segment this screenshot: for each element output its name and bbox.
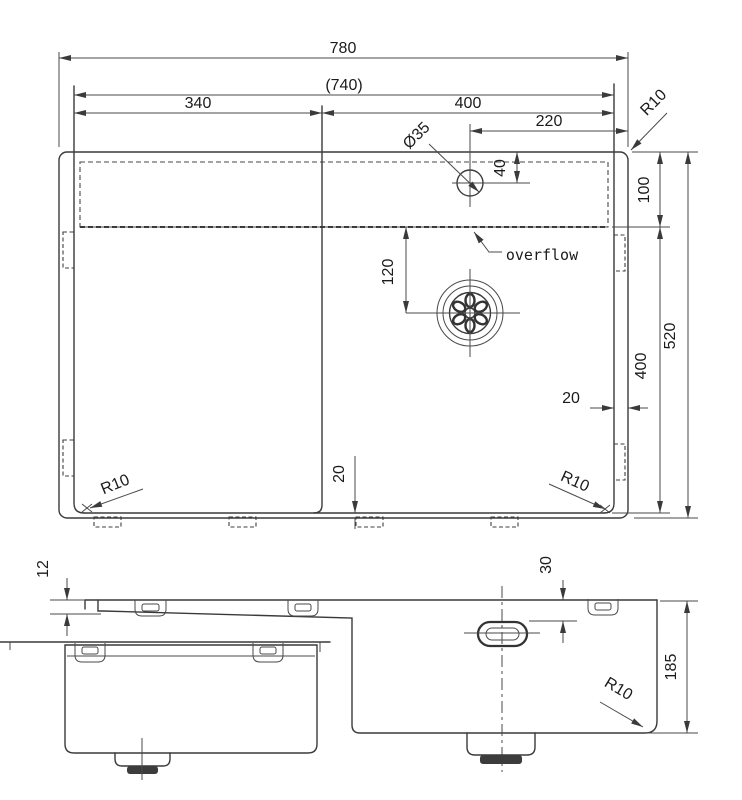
dim-tap-diameter: Ø35 (400, 119, 433, 152)
dim-right-bowl-width: 400 (455, 95, 482, 112)
side-drain (115, 738, 170, 780)
dim-tap-offset: 220 (536, 113, 563, 130)
clip-right-upper (614, 235, 625, 271)
dim-bowl-depth: 185 (663, 654, 680, 681)
bowl-right-wall (604, 84, 614, 513)
dim-radius-bottom-right: R10 (558, 468, 592, 496)
clip-left-upper (63, 232, 74, 268)
extension-lines (59, 52, 698, 518)
overflow-label: overflow (506, 246, 579, 264)
dim-bottom-radius: R10 (601, 674, 635, 704)
dim-overall-depth: 520 (662, 323, 679, 350)
dim-drain-offset: 120 (380, 259, 397, 286)
dim-rim-gap-bottom: 20 (331, 465, 348, 483)
dim-rim-gap-right: 20 (562, 390, 580, 407)
dim-ledge-depth: 100 (636, 177, 653, 204)
dimension-lines (59, 58, 688, 529)
ledge-hidden-edge (80, 162, 608, 227)
dim-rim-to-deck: 12 (35, 560, 52, 578)
dim-tap-from-edge: 40 (492, 159, 509, 177)
dim-overall-width: 780 (330, 40, 357, 57)
front-view: 12 30 185 R10 (35, 556, 698, 772)
front-drain (467, 733, 535, 764)
deck-and-bowl-profile (98, 600, 657, 733)
dim-bowl-inner-depth: 400 (633, 353, 650, 380)
leader-lines (82, 113, 667, 513)
bowl-left-wall (74, 86, 84, 513)
dim-inner-width: (740) (325, 77, 362, 94)
side-view (0, 642, 330, 780)
outer-rim-outline (59, 152, 628, 518)
side-clips (75, 643, 283, 662)
drawing-svg: 780 (740) 340 400 220 Ø35 40 100 400 520… (0, 0, 742, 800)
dim-left-bowl-width: 340 (185, 95, 212, 112)
bowl-divider (314, 106, 322, 513)
sink-technical-drawing: 780 (740) 340 400 220 Ø35 40 100 400 520… (0, 0, 742, 800)
clip-left-lower (63, 440, 74, 476)
clip-right-lower (614, 444, 625, 480)
dim-overflow-from-top: 30 (538, 556, 555, 574)
top-view: 780 (740) 340 400 220 Ø35 40 100 400 520… (59, 40, 698, 529)
